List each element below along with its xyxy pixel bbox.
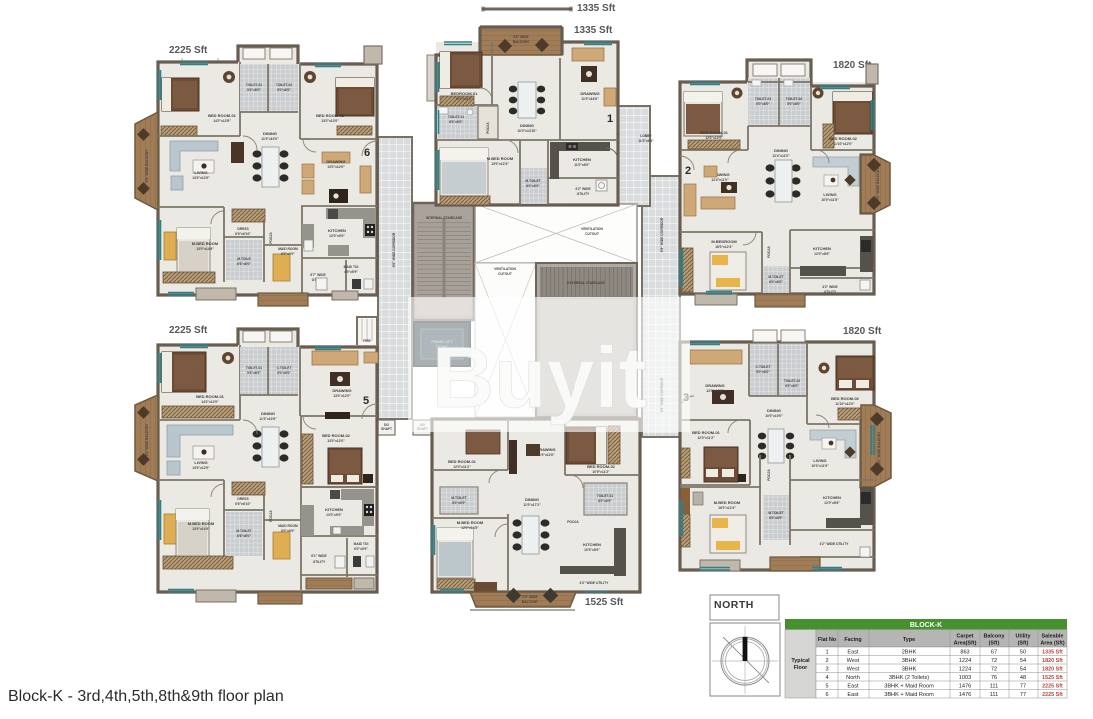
svg-text:2225 Sft: 2225 Sft [1042, 692, 1063, 698]
svg-text:Buyit: Buyit [432, 330, 647, 426]
svg-text:Area(Sft): Area(Sft) [954, 641, 977, 647]
svg-text:2: 2 [825, 658, 828, 664]
svg-text:SHAFT: SHAFT [381, 427, 392, 431]
svg-text:Flat No: Flat No [818, 637, 837, 643]
svg-text:863: 863 [960, 650, 969, 656]
svg-text:LOBBY: LOBBY [640, 134, 652, 138]
svg-text:76: 76 [991, 675, 997, 681]
svg-text:1820 Sft: 1820 Sft [1042, 658, 1063, 664]
svg-text:East: East [847, 684, 859, 690]
svg-text:NORTH: NORTH [714, 599, 754, 611]
svg-text:(Sft): (Sft) [989, 641, 1000, 647]
svg-text:East: East [847, 692, 859, 698]
svg-text:1224: 1224 [959, 658, 971, 664]
svg-text:4: 4 [825, 675, 828, 681]
svg-text:3BHK: 3BHK [902, 658, 917, 664]
svg-text:5'0" WIDE BALCONY: 5'0" WIDE BALCONY [876, 167, 880, 201]
svg-text:72: 72 [991, 658, 997, 664]
svg-text:5'6" WIDE: 5'6" WIDE [513, 35, 529, 39]
svg-text:CUTOUT: CUTOUT [498, 272, 512, 276]
svg-text:CUTOUT: CUTOUT [585, 232, 599, 236]
svg-text:9'9" WIDE CORRIDOR: 9'9" WIDE CORRIDOR [660, 217, 664, 252]
svg-text:111: 111 [990, 684, 999, 690]
svg-text:67: 67 [991, 650, 997, 656]
svg-text:Floor: Floor [794, 665, 808, 671]
svg-text:1525 Sft: 1525 Sft [585, 597, 624, 608]
svg-text:1476: 1476 [959, 684, 971, 690]
svg-text:Balcony: Balcony [984, 634, 1005, 640]
svg-text:77: 77 [1020, 692, 1026, 698]
svg-text:BLOCK-K: BLOCK-K [910, 622, 942, 629]
svg-text:VENTILATION: VENTILATION [581, 227, 603, 231]
svg-text:BALCONY: BALCONY [522, 600, 539, 604]
svg-text:1820 Sft: 1820 Sft [843, 326, 882, 337]
svg-text:2225 Sft: 2225 Sft [169, 325, 208, 336]
svg-text:1224: 1224 [959, 667, 971, 673]
svg-text:North: North [846, 675, 860, 681]
svg-text:1525 Sft: 1525 Sft [1042, 675, 1063, 681]
svg-text:Saleable: Saleable [1042, 634, 1064, 640]
svg-text:3BHK + Maid Room: 3BHK + Maid Room [884, 684, 934, 690]
svg-text:Block-K - 3rd,4th,5th,8th&9th: Block-K - 3rd,4th,5th,8th&9th floor plan [8, 688, 284, 705]
svg-text:1335 Sft: 1335 Sft [574, 25, 613, 36]
svg-text:1335 Sft: 1335 Sft [577, 3, 616, 14]
svg-text:1: 1 [825, 650, 828, 656]
svg-text:West: West [847, 658, 860, 664]
svg-text:Facing: Facing [844, 637, 861, 643]
svg-text:West: West [847, 667, 860, 673]
svg-text:3BHK (2 Toilets): 3BHK (2 Toilets) [889, 675, 929, 681]
svg-text:1003: 1003 [959, 675, 971, 681]
svg-text:5: 5 [825, 684, 828, 690]
svg-text:77: 77 [1020, 684, 1026, 690]
svg-text:2225 Sft: 2225 Sft [1042, 684, 1063, 690]
svg-text:54: 54 [1020, 667, 1026, 673]
svg-text:Carpet: Carpet [956, 634, 973, 640]
svg-text:1476: 1476 [959, 692, 971, 698]
svg-text:6: 6 [825, 692, 828, 698]
svg-text:48: 48 [1020, 675, 1026, 681]
svg-text:(Sft): (Sft) [1018, 641, 1029, 647]
svg-text:111: 111 [990, 692, 999, 698]
svg-text:East: East [847, 650, 859, 656]
svg-text:3BHK + Maid Room: 3BHK + Maid Room [884, 692, 934, 698]
svg-text:50: 50 [1020, 650, 1026, 656]
svg-text:6'0" WIDE BALCONY: 6'0" WIDE BALCONY [877, 431, 881, 465]
svg-text:9'6" WIDE BALCONY: 9'6" WIDE BALCONY [145, 149, 149, 183]
svg-text:9'6" WIDE CORRIDOR: 9'6" WIDE CORRIDOR [392, 232, 396, 267]
svg-text:72: 72 [991, 667, 997, 673]
svg-text:EXTERNAL STAIRCASE: EXTERNAL STAIRCASE [567, 281, 605, 285]
svg-text:2BHK: 2BHK [902, 650, 917, 656]
svg-text:54: 54 [1020, 658, 1026, 664]
svg-text:Type: Type [903, 637, 915, 643]
svg-text:3: 3 [825, 667, 828, 673]
svg-text:2225 Sft: 2225 Sft [169, 45, 208, 56]
svg-text:Typical: Typical [791, 658, 810, 664]
svg-text:11'3"x9'4": 11'3"x9'4" [638, 139, 654, 143]
svg-text:FIRE: FIRE [363, 339, 371, 343]
svg-text:INTERNAL STAIRCASE: INTERNAL STAIRCASE [426, 216, 463, 220]
svg-text:1335 Sft: 1335 Sft [1042, 650, 1063, 656]
svg-text:Utility: Utility [1016, 634, 1031, 640]
svg-text:1820 Sft: 1820 Sft [1042, 667, 1063, 673]
svg-text:VENTILATION: VENTILATION [494, 267, 516, 271]
svg-text:5'0" WIDE: 5'0" WIDE [522, 595, 538, 599]
svg-text:9'6" WIDE BALCONY: 9'6" WIDE BALCONY [145, 423, 149, 457]
svg-text:3BHK: 3BHK [902, 667, 917, 673]
svg-text:Area (Sft): Area (Sft) [1040, 641, 1064, 647]
